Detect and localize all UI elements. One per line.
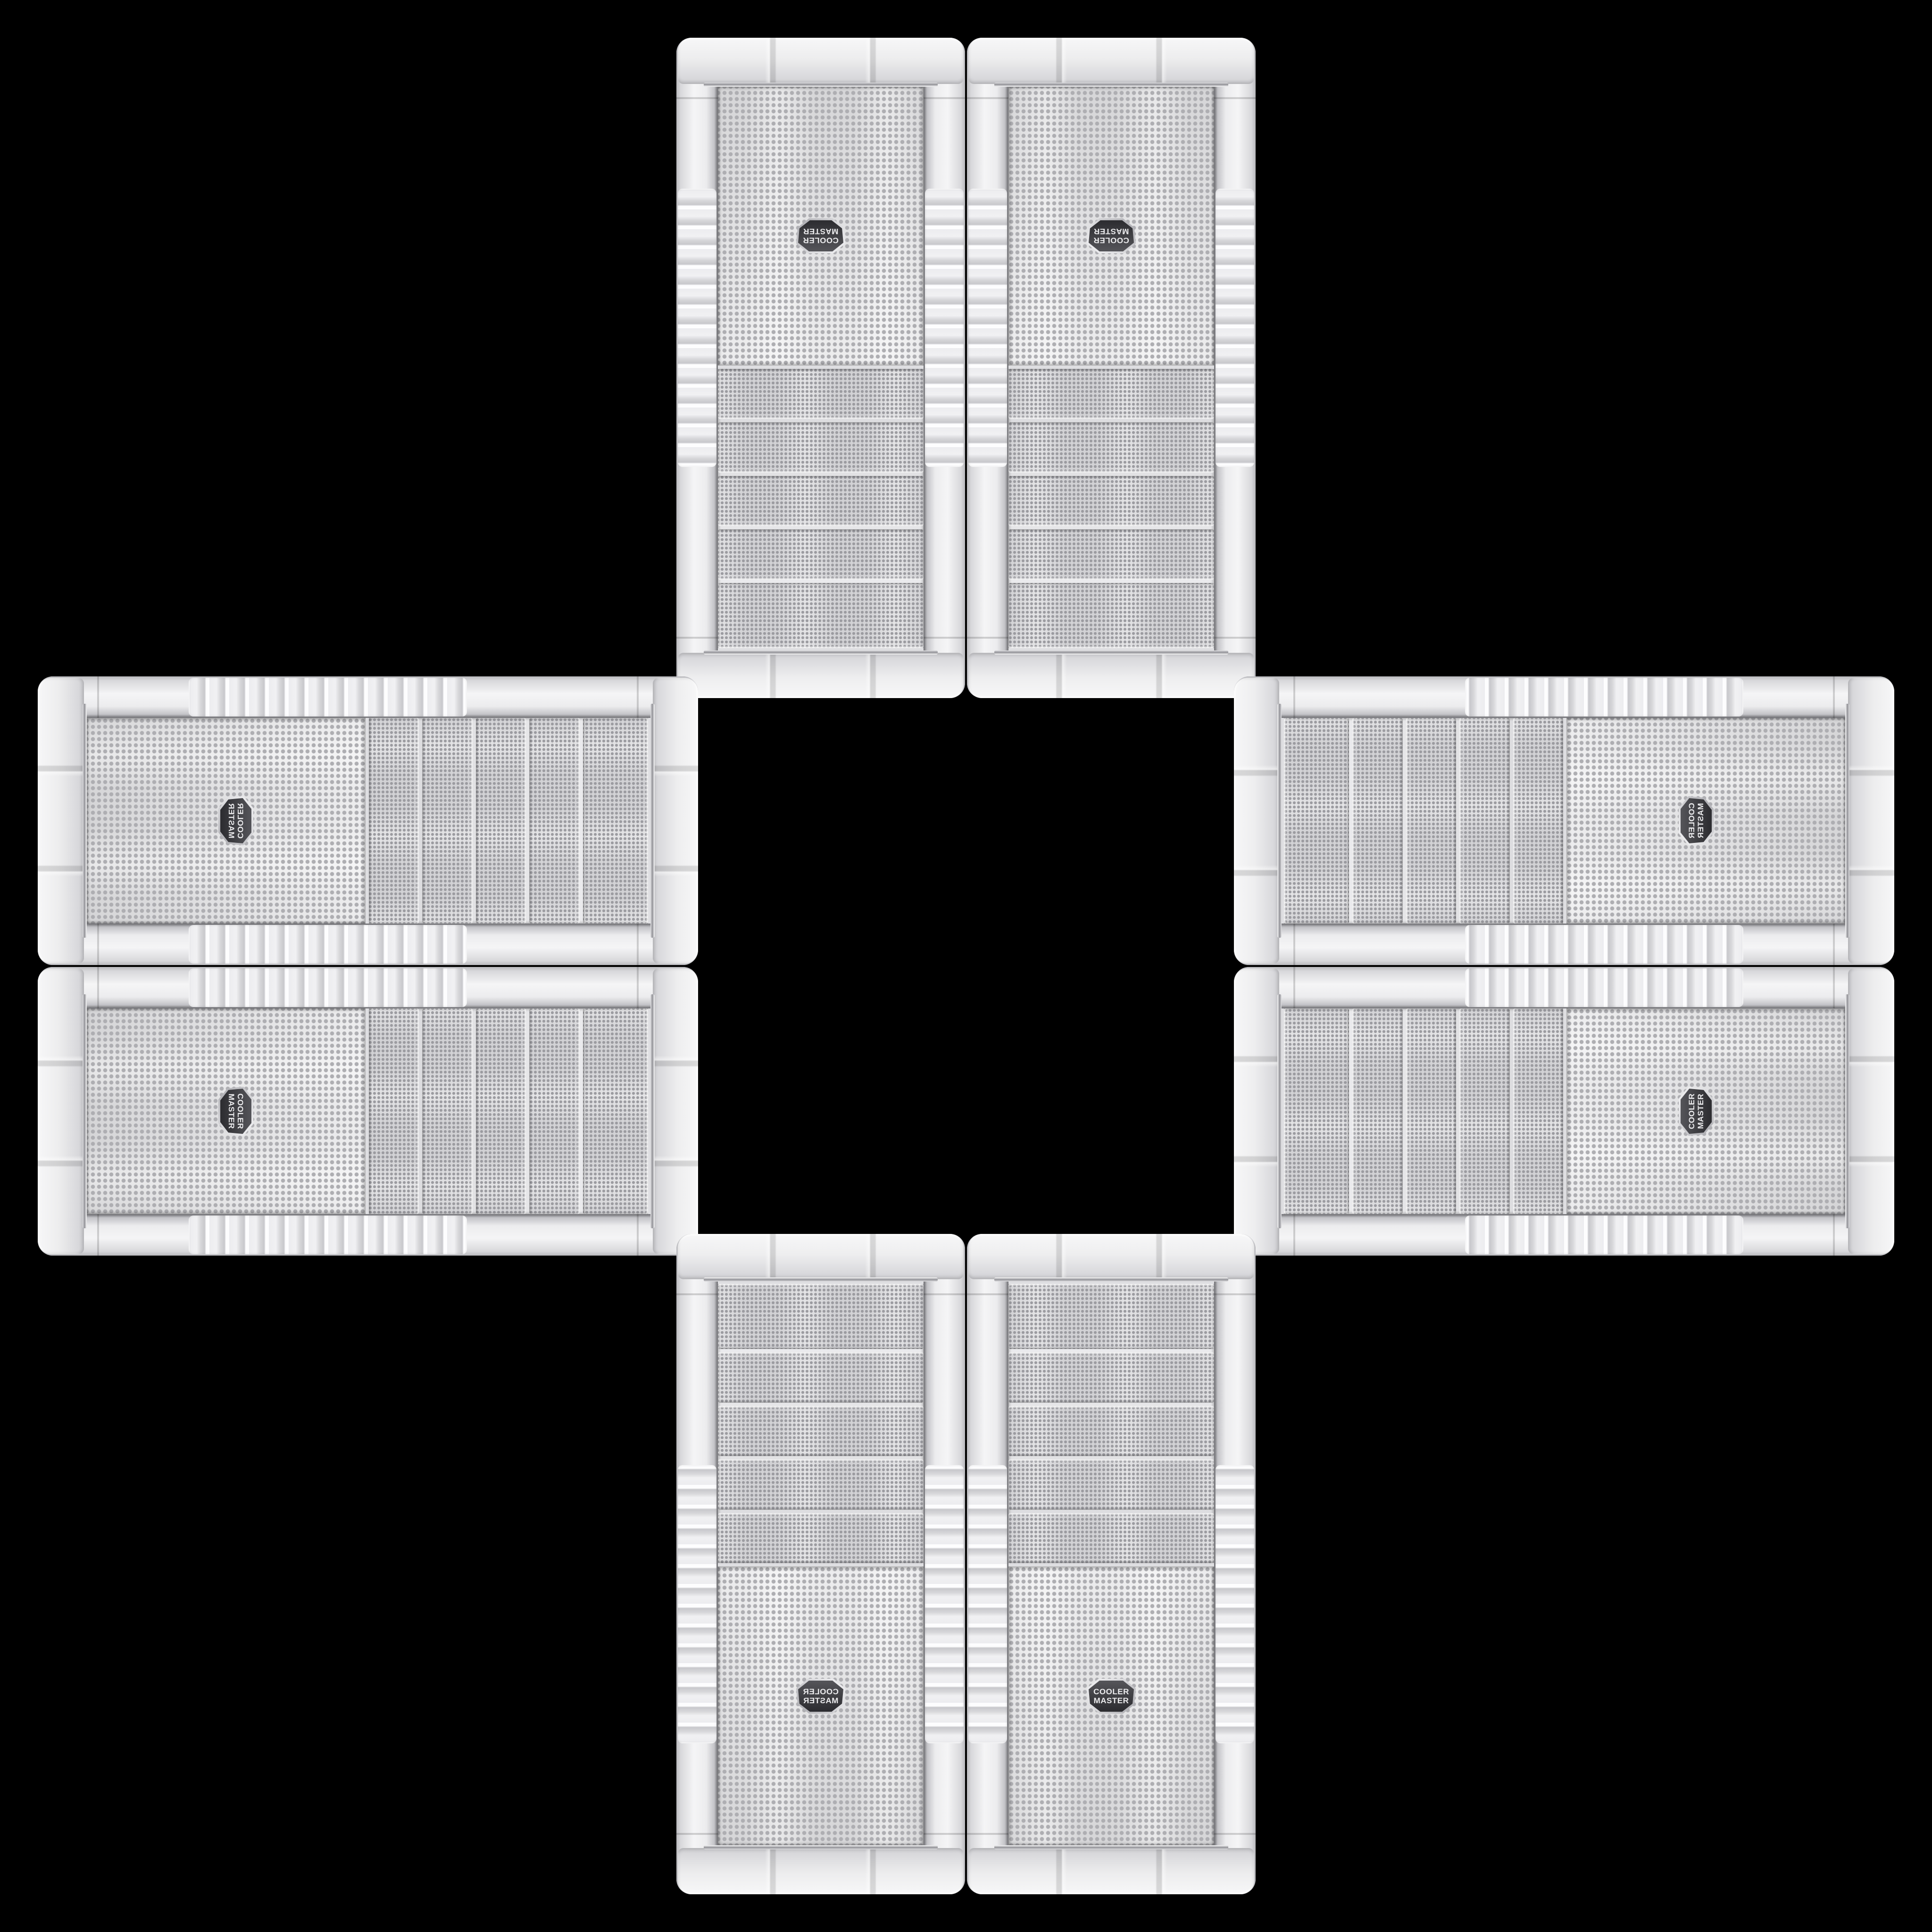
drive-bay-cover [369,718,419,924]
bezel-mesh-band [1008,1284,1214,1349]
chrome-trim-top [704,650,938,655]
drive-bay-cover [529,718,579,924]
drive-bay-cover [1008,476,1214,526]
logo-line-1: COOLER [236,803,245,839]
chrome-trim-top [1277,994,1282,1228]
front-mesh-panel: COOLER MASTER [1008,87,1214,366]
drive-bay-cover [718,422,924,472]
drive-bay-stack [718,1284,924,1563]
drive-bay-cover [1459,718,1509,924]
logo-line-2: MASTER [803,1696,839,1705]
logo-line-2: MASTER [1696,803,1705,839]
logo-line-1: COOLER [1093,236,1129,245]
top-cap [653,678,698,964]
chrome-trim-top [994,1277,1228,1282]
drive-bay-cover [476,1008,526,1214]
bezel-mesh-band [583,718,648,924]
side-rail-right [1234,676,1894,718]
case-left-top: COOLER MASTER [38,676,698,965]
case-front-panel: COOLER MASTER [676,1234,965,1894]
logo-line-2: MASTER [803,227,839,236]
drive-bay-cover [1008,529,1214,579]
drive-bay-cover [718,369,924,419]
bottom-cap [1848,968,1894,1254]
case-right-bottom: COOLER MASTER [1234,967,1894,1256]
drive-bay-stack [1008,369,1214,648]
drive-bay-cover [1513,718,1563,924]
front-mesh-panel: COOLER MASTER [87,718,366,924]
top-cap [678,653,964,698]
drive-bay-stack [718,369,924,648]
drive-bay-stack [369,718,648,924]
side-rail-right [38,967,698,1008]
bottom-cap [1848,678,1894,964]
logo-line-2: MASTER [1094,1696,1129,1705]
chrome-trim-bottom [994,1845,1228,1849]
chrome-trim-top [650,704,655,938]
drive-bay-cover [369,1008,419,1214]
top-cap [1234,678,1279,964]
cooler-master-badge: COOLER MASTER [796,1679,845,1714]
bezel-mesh-band [1284,1008,1349,1214]
drive-bay-cover [1008,422,1214,472]
logo-line-1: COOLER [803,236,839,245]
side-rail-right [38,924,698,965]
chrome-trim-bottom [704,1845,938,1849]
logo-line-2: MASTER [227,1094,236,1129]
drive-bay-cover [718,1352,924,1402]
side-rail-left [967,1234,1008,1894]
case-front-panel: COOLER MASTER [1234,676,1894,965]
drive-bay-stack [369,1008,648,1214]
chrome-trim-top [650,994,655,1228]
drive-bay-stack [1008,1284,1214,1563]
drive-bay-cover [476,718,526,924]
drive-bay-cover [1406,1008,1456,1214]
cooler-master-logo: COOLER MASTER [1681,798,1712,843]
bezel-mesh-band [718,1284,924,1349]
cooler-master-logo: COOLER MASTER [1089,220,1134,251]
drive-bay-cover [1008,1406,1214,1456]
logo-line-1: COOLER [1093,1687,1129,1696]
bezel-mesh-band [1284,718,1349,924]
side-rail-left [38,676,698,718]
cooler-master-logo: COOLER MASTER [1681,1089,1712,1134]
drive-bay-cover [1459,1008,1509,1214]
bezel-mesh-band [583,1008,648,1214]
chrome-trim-bottom [1845,994,1849,1228]
drive-bay-cover [422,1008,472,1214]
case-top-left: COOLER MASTER [676,38,965,698]
drive-bay-cover [1352,1008,1402,1214]
chrome-trim-top [704,1277,938,1282]
top-cap [678,1234,964,1279]
side-rail-right [676,1234,718,1894]
bottom-cap [678,1848,964,1894]
side-rail-right [1214,1234,1256,1894]
front-mesh-panel: COOLER MASTER [87,1008,366,1214]
side-rail-left [924,38,965,698]
drive-bay-cover [1008,369,1214,419]
chrome-trim-bottom [1845,704,1849,938]
bottom-cap [968,38,1254,84]
chrome-trim-bottom [994,83,1228,87]
logo-line-2: MASTER [1094,227,1129,236]
front-mesh-panel: COOLER MASTER [1566,718,1845,924]
side-rail-left [1234,967,1894,1008]
bottom-cap [38,968,84,1254]
drive-bay-stack [1284,718,1563,924]
black-backdrop: COOLER MASTER COOLER MASTER [0,0,1932,1932]
cooler-master-badge: COOLER MASTER [1087,1679,1136,1714]
cooler-master-logo: COOLER MASTER [220,1089,251,1134]
side-rail-left [924,1234,965,1894]
drive-bay-cover [422,718,472,924]
cooler-master-logo: COOLER MASTER [798,220,843,251]
chrome-trim-bottom [83,704,87,938]
cooler-master-logo: COOLER MASTER [220,798,251,843]
drive-bay-cover [1352,718,1402,924]
case-left-bottom: COOLER MASTER [38,967,698,1256]
chrome-trim-top [1277,704,1282,938]
bezel-mesh-band [1008,583,1214,648]
drive-bay-cover [718,476,924,526]
top-cap [1234,968,1279,1254]
side-rail-right [1214,38,1256,698]
side-rail-right [1234,1214,1894,1256]
logo-line-1: COOLER [236,1093,245,1129]
case-front-panel: COOLER MASTER [1234,967,1894,1256]
logo-line-2: MASTER [1696,1094,1705,1129]
cooler-master-badge: COOLER MASTER [218,1087,253,1136]
bottom-cap [968,1848,1254,1894]
chrome-trim-bottom [704,83,938,87]
top-cap [968,1234,1254,1279]
front-mesh-panel: COOLER MASTER [718,1566,924,1845]
chrome-trim-top [994,650,1228,655]
drive-bay-cover [1008,1352,1214,1402]
drive-bay-cover [718,1459,924,1509]
drive-bay-cover [1008,1513,1214,1563]
drive-bay-cover [718,529,924,579]
drive-bay-cover [1008,1459,1214,1509]
cooler-master-badge: COOLER MASTER [1679,796,1714,845]
side-rail-left [1234,924,1894,965]
front-mesh-panel: COOLER MASTER [1566,1008,1845,1214]
front-mesh-panel: COOLER MASTER [1008,1566,1214,1845]
front-mesh-panel: COOLER MASTER [718,87,924,366]
case-front-panel: COOLER MASTER [967,1234,1256,1894]
bottom-cap [38,678,84,964]
cooler-master-logo: COOLER MASTER [798,1681,843,1712]
drive-bay-cover [1406,718,1456,924]
logo-line-1: COOLER [803,1687,839,1696]
chrome-trim-bottom [83,994,87,1228]
case-right-top: COOLER MASTER [1234,676,1894,965]
case-top-right: COOLER MASTER [967,38,1256,698]
drive-bay-stack [1284,1008,1563,1214]
logo-line-1: COOLER [1687,1093,1696,1129]
side-rail-right [676,38,718,698]
drive-bay-cover [529,1008,579,1214]
cooler-master-badge: COOLER MASTER [218,796,253,845]
case-front-panel: COOLER MASTER [38,967,698,1256]
top-cap [653,968,698,1254]
cooler-master-badge: COOLER MASTER [1087,218,1136,253]
logo-line-2: MASTER [227,803,236,839]
logo-line-1: COOLER [1687,803,1696,839]
side-rail-left [38,1214,698,1256]
cooler-master-badge: COOLER MASTER [796,218,845,253]
side-rail-left [967,38,1008,698]
cooler-master-logo: COOLER MASTER [1089,1681,1134,1712]
drive-bay-cover [718,1406,924,1456]
drive-bay-cover [718,1513,924,1563]
case-front-panel: COOLER MASTER [676,38,965,698]
case-bottom-right: COOLER MASTER [967,1234,1256,1894]
bottom-cap [678,38,964,84]
case-front-panel: COOLER MASTER [967,38,1256,698]
top-cap [968,653,1254,698]
cooler-master-badge: COOLER MASTER [1679,1087,1714,1136]
drive-bay-cover [1513,1008,1563,1214]
case-front-panel: COOLER MASTER [38,676,698,965]
case-bottom-left: COOLER MASTER [676,1234,965,1894]
bezel-mesh-band [718,583,924,648]
